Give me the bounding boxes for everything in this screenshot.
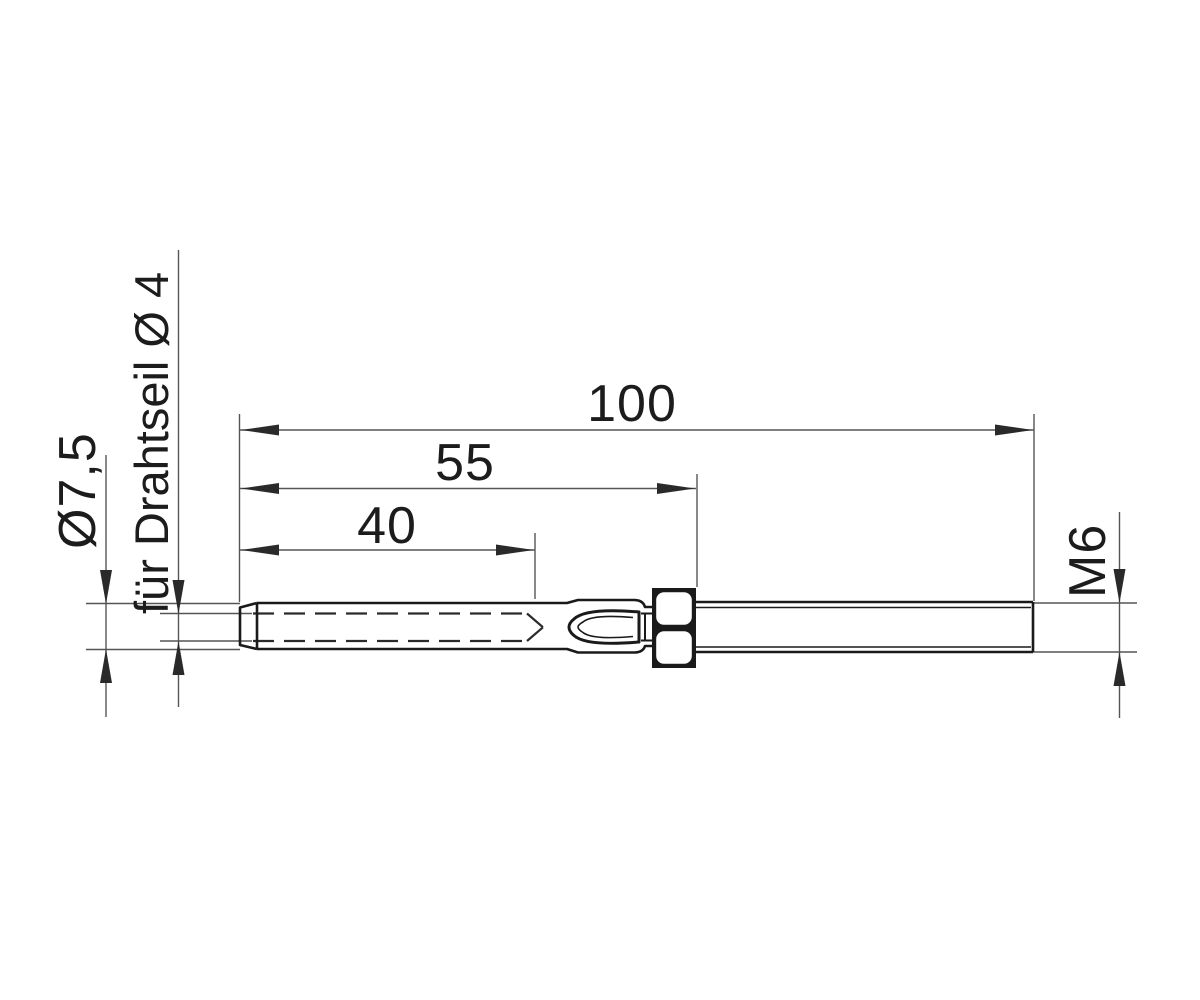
thread-root-lines bbox=[696, 608, 1031, 648]
arrow-dia75-top bbox=[100, 570, 112, 604]
arrow-55-right bbox=[657, 483, 695, 494]
threaded-rod bbox=[696, 602, 1033, 652]
arrow-dia4-bottom bbox=[173, 641, 185, 675]
drawing-geometry bbox=[0, 0, 1200, 1000]
dim-label-wire-rope-note: für Drahtseil Ø 4 bbox=[128, 272, 175, 614]
arrow-40-left bbox=[241, 545, 279, 556]
dim-label-thread-size: M6 bbox=[1062, 524, 1114, 598]
swage-barrel bbox=[569, 611, 652, 644]
swage-sleeve-outline bbox=[240, 600, 652, 653]
bore-hidden-lines bbox=[253, 614, 543, 642]
dim-label-length-to-nut: 55 bbox=[435, 437, 495, 489]
arrow-55-left bbox=[241, 483, 279, 494]
arrow-m6-bottom bbox=[1114, 652, 1126, 686]
arrow-dia75-bottom bbox=[100, 649, 112, 683]
arrow-40-right bbox=[496, 545, 534, 556]
dim-label-overall-length: 100 bbox=[587, 378, 677, 430]
hex-nut bbox=[652, 588, 696, 668]
arrow-100-right bbox=[995, 425, 1033, 436]
technical-drawing: 100 55 40 Ø7,5 für Drahtseil Ø 4 M6 bbox=[0, 0, 1200, 1000]
dim-label-bore-depth: 40 bbox=[357, 500, 417, 552]
arrow-100-left bbox=[241, 425, 279, 436]
dim-label-sleeve-diameter: Ø7,5 bbox=[52, 432, 104, 549]
